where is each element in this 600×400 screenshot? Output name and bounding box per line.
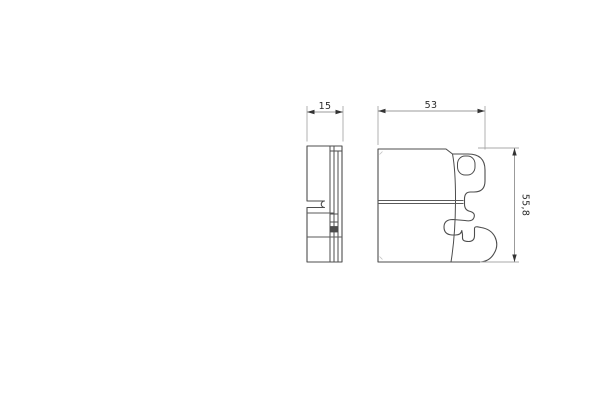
side-view-outline xyxy=(307,146,342,262)
drawing-canvas: 15 53 55,8 xyxy=(0,0,600,400)
dimension-front-width: 53 xyxy=(378,100,485,150)
arrow-left-icon xyxy=(307,110,315,114)
dimension-label-55-8: 55,8 xyxy=(520,194,531,216)
brake-pad-technical-drawing: 15 53 55,8 xyxy=(0,0,600,400)
dimension-label-53: 53 xyxy=(425,100,438,111)
side-view xyxy=(307,146,342,262)
front-view-outline xyxy=(378,149,497,262)
dimension-label-15: 15 xyxy=(319,101,332,112)
dimension-side-width: 15 xyxy=(307,101,343,142)
arrow-left-icon xyxy=(378,109,386,113)
arrow-down-icon xyxy=(512,255,516,263)
front-view xyxy=(378,149,497,262)
arrow-right-icon xyxy=(478,109,486,113)
arrow-up-icon xyxy=(512,148,516,156)
clip-section-lower xyxy=(330,227,338,233)
arrow-right-icon xyxy=(336,110,344,114)
